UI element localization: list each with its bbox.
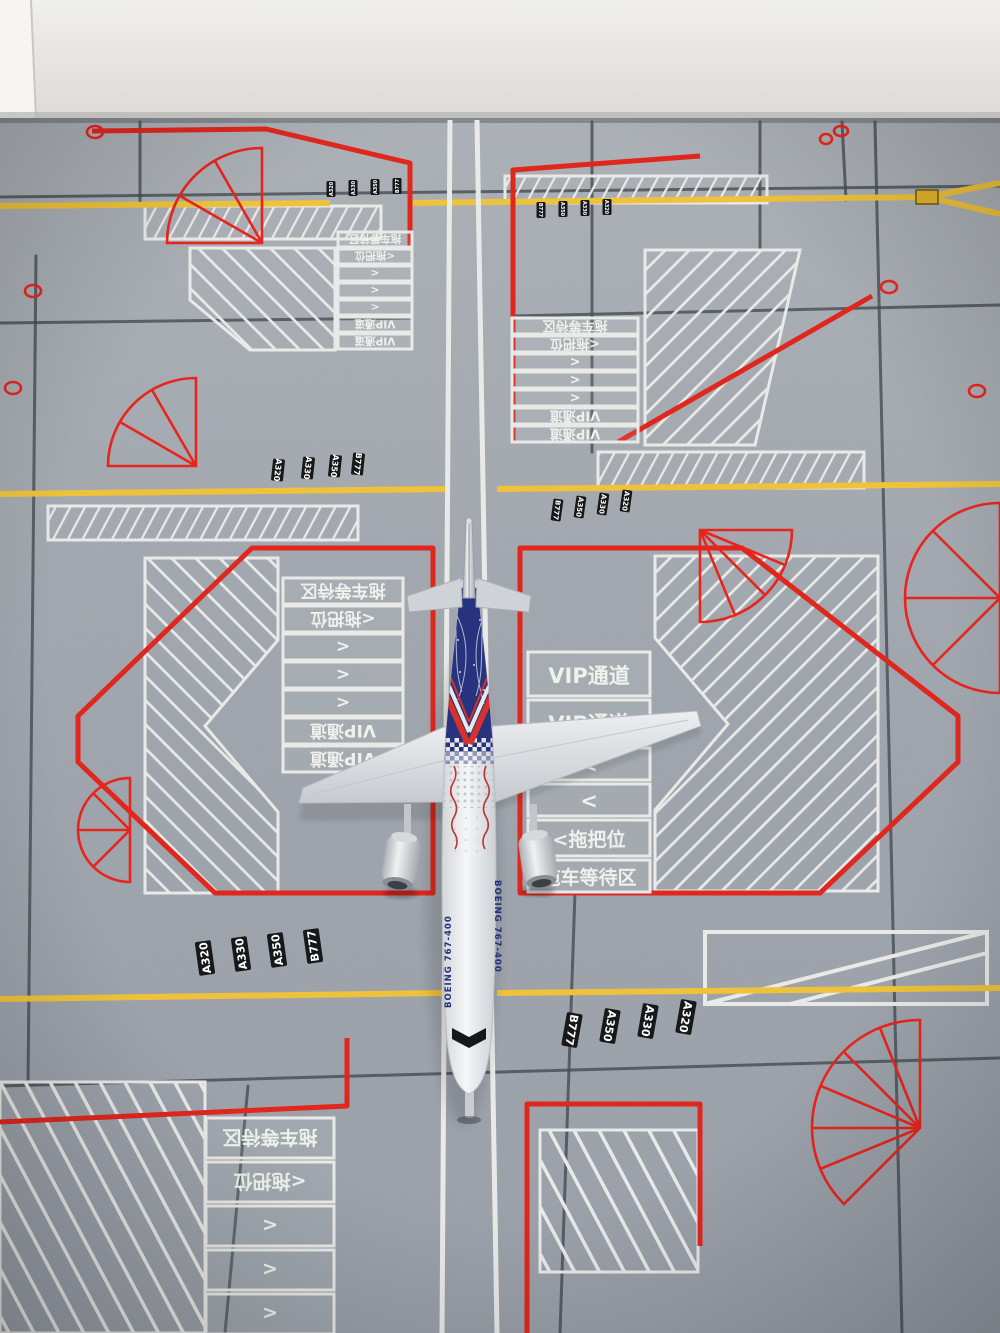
wall-corner: [0, 0, 35, 118]
background-wall: [0, 0, 1000, 122]
apron-photo: 拖车等待区 <拖把位 < < < VIP通道 VIP通道 拖车等待区 <拖把位 …: [0, 0, 1000, 1333]
wall: [0, 0, 1000, 122]
photo-vignette: [0, 118, 1000, 1333]
scene-svg: 拖车等待区 <拖把位 < < < VIP通道 VIP通道 拖车等待区 <拖把位 …: [0, 0, 1000, 1333]
